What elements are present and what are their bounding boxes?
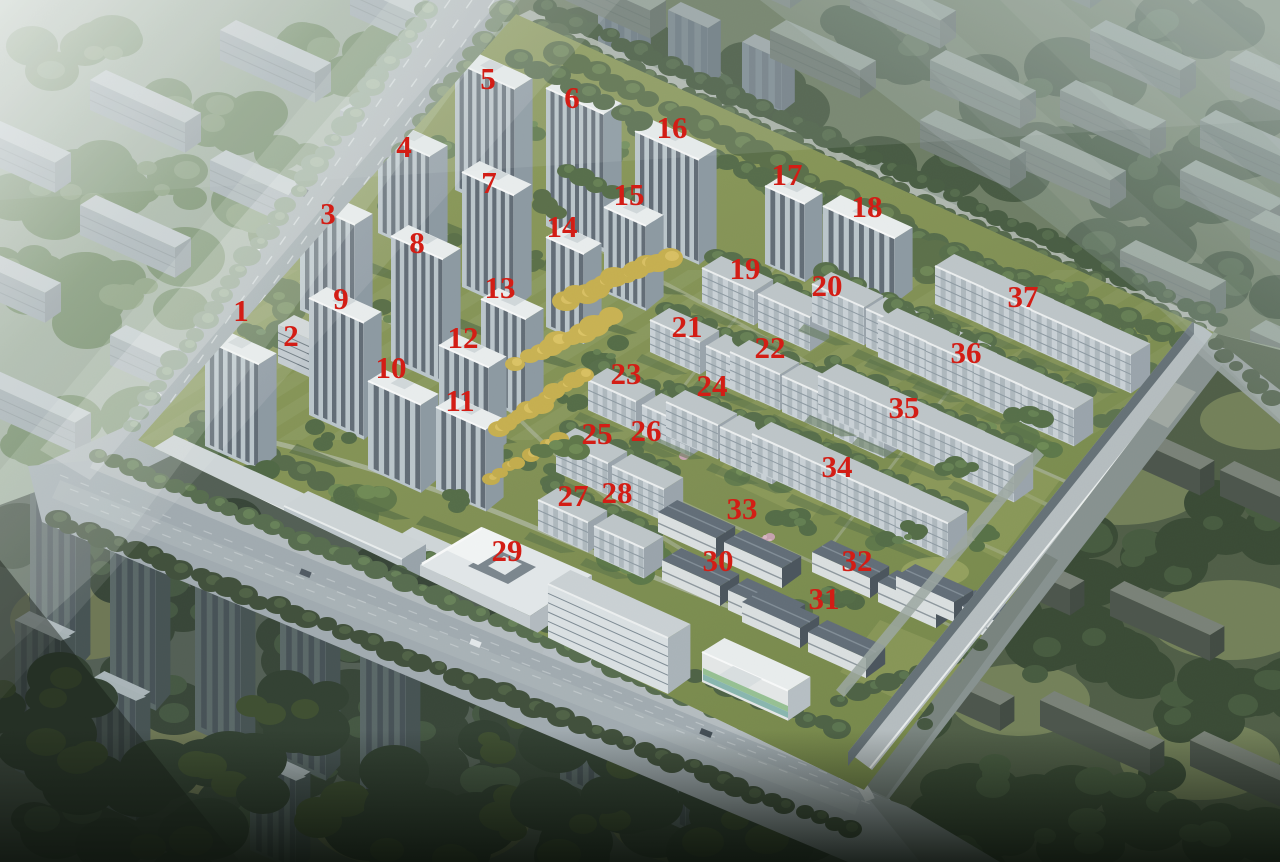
svg-text:11: 11 [445,383,474,418]
svg-text:15: 15 [614,177,645,212]
svg-text:1: 1 [233,293,249,328]
svg-text:19: 19 [730,251,761,286]
svg-text:14: 14 [547,209,578,244]
svg-text:10: 10 [376,350,407,385]
svg-text:20: 20 [812,268,843,303]
svg-text:12: 12 [448,320,479,355]
svg-text:37: 37 [1008,279,1039,314]
svg-text:3: 3 [320,196,336,231]
svg-text:13: 13 [485,270,516,305]
svg-text:5: 5 [480,61,496,96]
svg-text:6: 6 [564,80,580,115]
svg-text:7: 7 [481,165,497,200]
svg-text:4: 4 [396,129,412,164]
svg-text:18: 18 [852,189,883,224]
svg-text:34: 34 [822,449,853,484]
svg-text:17: 17 [772,157,803,192]
svg-text:35: 35 [889,390,920,425]
svg-text:9: 9 [333,281,349,316]
svg-text:24: 24 [697,368,728,403]
svg-text:26: 26 [631,413,662,448]
svg-text:21: 21 [672,309,703,344]
svg-text:36: 36 [951,335,982,370]
svg-text:29: 29 [492,533,523,568]
svg-text:23: 23 [611,356,642,391]
svg-text:25: 25 [582,416,613,451]
svg-text:22: 22 [755,330,786,365]
svg-text:16: 16 [657,110,688,145]
svg-text:31: 31 [809,581,840,616]
svg-text:30: 30 [703,543,734,578]
svg-text:8: 8 [409,225,425,260]
svg-text:28: 28 [602,475,633,510]
svg-text:2: 2 [283,318,299,353]
svg-text:33: 33 [727,491,758,526]
svg-text:27: 27 [558,478,589,513]
svg-text:32: 32 [842,543,873,578]
